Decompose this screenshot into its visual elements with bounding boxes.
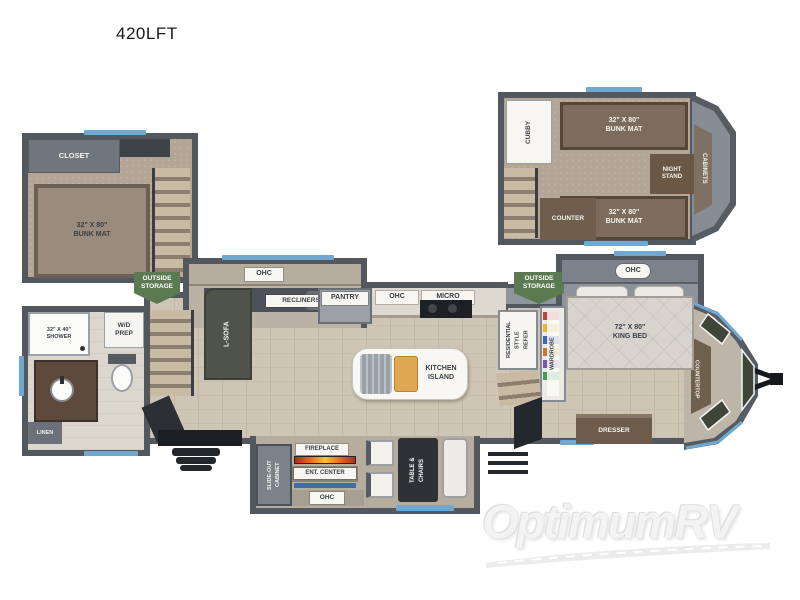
- living-slide-window: [222, 255, 334, 260]
- wardrobe-label: WARDROBE: [547, 312, 559, 396]
- loft-left-counter-slab: [120, 139, 170, 157]
- washer-dryer-prep: W/D PREP: [104, 312, 144, 348]
- entry-fold-steps: [488, 452, 528, 476]
- floorplan-canvas: 420LFT CLOSET 32" X 80" BUNK MAT CABINET…: [0, 0, 800, 600]
- toilet-bowl: [111, 364, 133, 392]
- dining-chair-2: [366, 472, 394, 498]
- fireplace: [294, 456, 356, 464]
- night-stand: NIGHT STAND: [650, 154, 694, 194]
- main-stairs: [150, 310, 194, 396]
- entry-step-3: [180, 465, 212, 471]
- watermark: OptimumRV: [482, 494, 792, 570]
- closet: CLOSET: [28, 139, 120, 173]
- dining-chair-1: [366, 440, 394, 466]
- shower-drain: [80, 346, 85, 351]
- entry-threshold-left: [158, 430, 242, 446]
- floorplan-title: 420LFT: [116, 24, 178, 44]
- loft-right-window-bottom: [584, 241, 648, 246]
- loft-right-window-top: [586, 87, 642, 92]
- fireplace-label: FIREPLACE: [296, 444, 348, 455]
- toilet-tank: [108, 354, 136, 364]
- bunk-mat-loft-left: 32" X 80" BUNK MAT: [34, 184, 150, 278]
- ent-center-label: ENT. CENTER: [294, 468, 356, 479]
- bedroom-slide-window: [614, 251, 666, 256]
- island-cutting-board: [394, 356, 418, 392]
- pantry-label: PANTRY: [322, 292, 368, 305]
- cubby: CUBBY: [506, 100, 552, 164]
- residential-refer: RESIDENTIAL STYLE REFER: [498, 310, 538, 370]
- loft-left-window: [84, 130, 146, 135]
- entry-step-1: [172, 448, 220, 456]
- table-and-chairs: TABLE & CHAIRS: [398, 438, 438, 502]
- slide-out-cabinet: SLIDE-OUT CABINET: [256, 444, 292, 506]
- cabinets-label: CABINETS: [696, 137, 710, 199]
- rear-ohc-label: OHC: [310, 492, 344, 504]
- dining-bench: [442, 438, 468, 498]
- ent-center-shelf: [294, 483, 356, 488]
- living-ohc-label: OHC: [245, 268, 283, 281]
- counter-loft: COUNTER: [540, 198, 596, 240]
- dresser: DRESSER: [576, 414, 652, 444]
- cooktop-burner-1: [428, 304, 437, 313]
- rear-slide-window: [396, 505, 454, 511]
- watermark-road: [482, 541, 778, 569]
- linen-cabinet: LINEN: [28, 422, 62, 444]
- cooktop-burner-2: [448, 304, 457, 313]
- body-window-left: [84, 451, 138, 456]
- bath-window: [19, 356, 24, 396]
- loft-right-stairs: [504, 168, 538, 238]
- loft-left-stairs: [152, 168, 190, 272]
- king-bed: 72" X 80" KING BED: [566, 296, 694, 370]
- bunk-mat-top: 32" X 80" BUNK MAT: [560, 102, 688, 150]
- kitchen-ohc-label: OHC: [376, 291, 418, 304]
- l-sofa: L-SOFA: [204, 288, 252, 380]
- kitchen-island-label: KITCHEN ISLAND: [418, 354, 464, 394]
- island-sink: [360, 354, 392, 394]
- bedroom-ohc-label: OHC: [616, 264, 650, 278]
- bath-faucet: [60, 376, 64, 384]
- entry-step-2: [176, 457, 216, 464]
